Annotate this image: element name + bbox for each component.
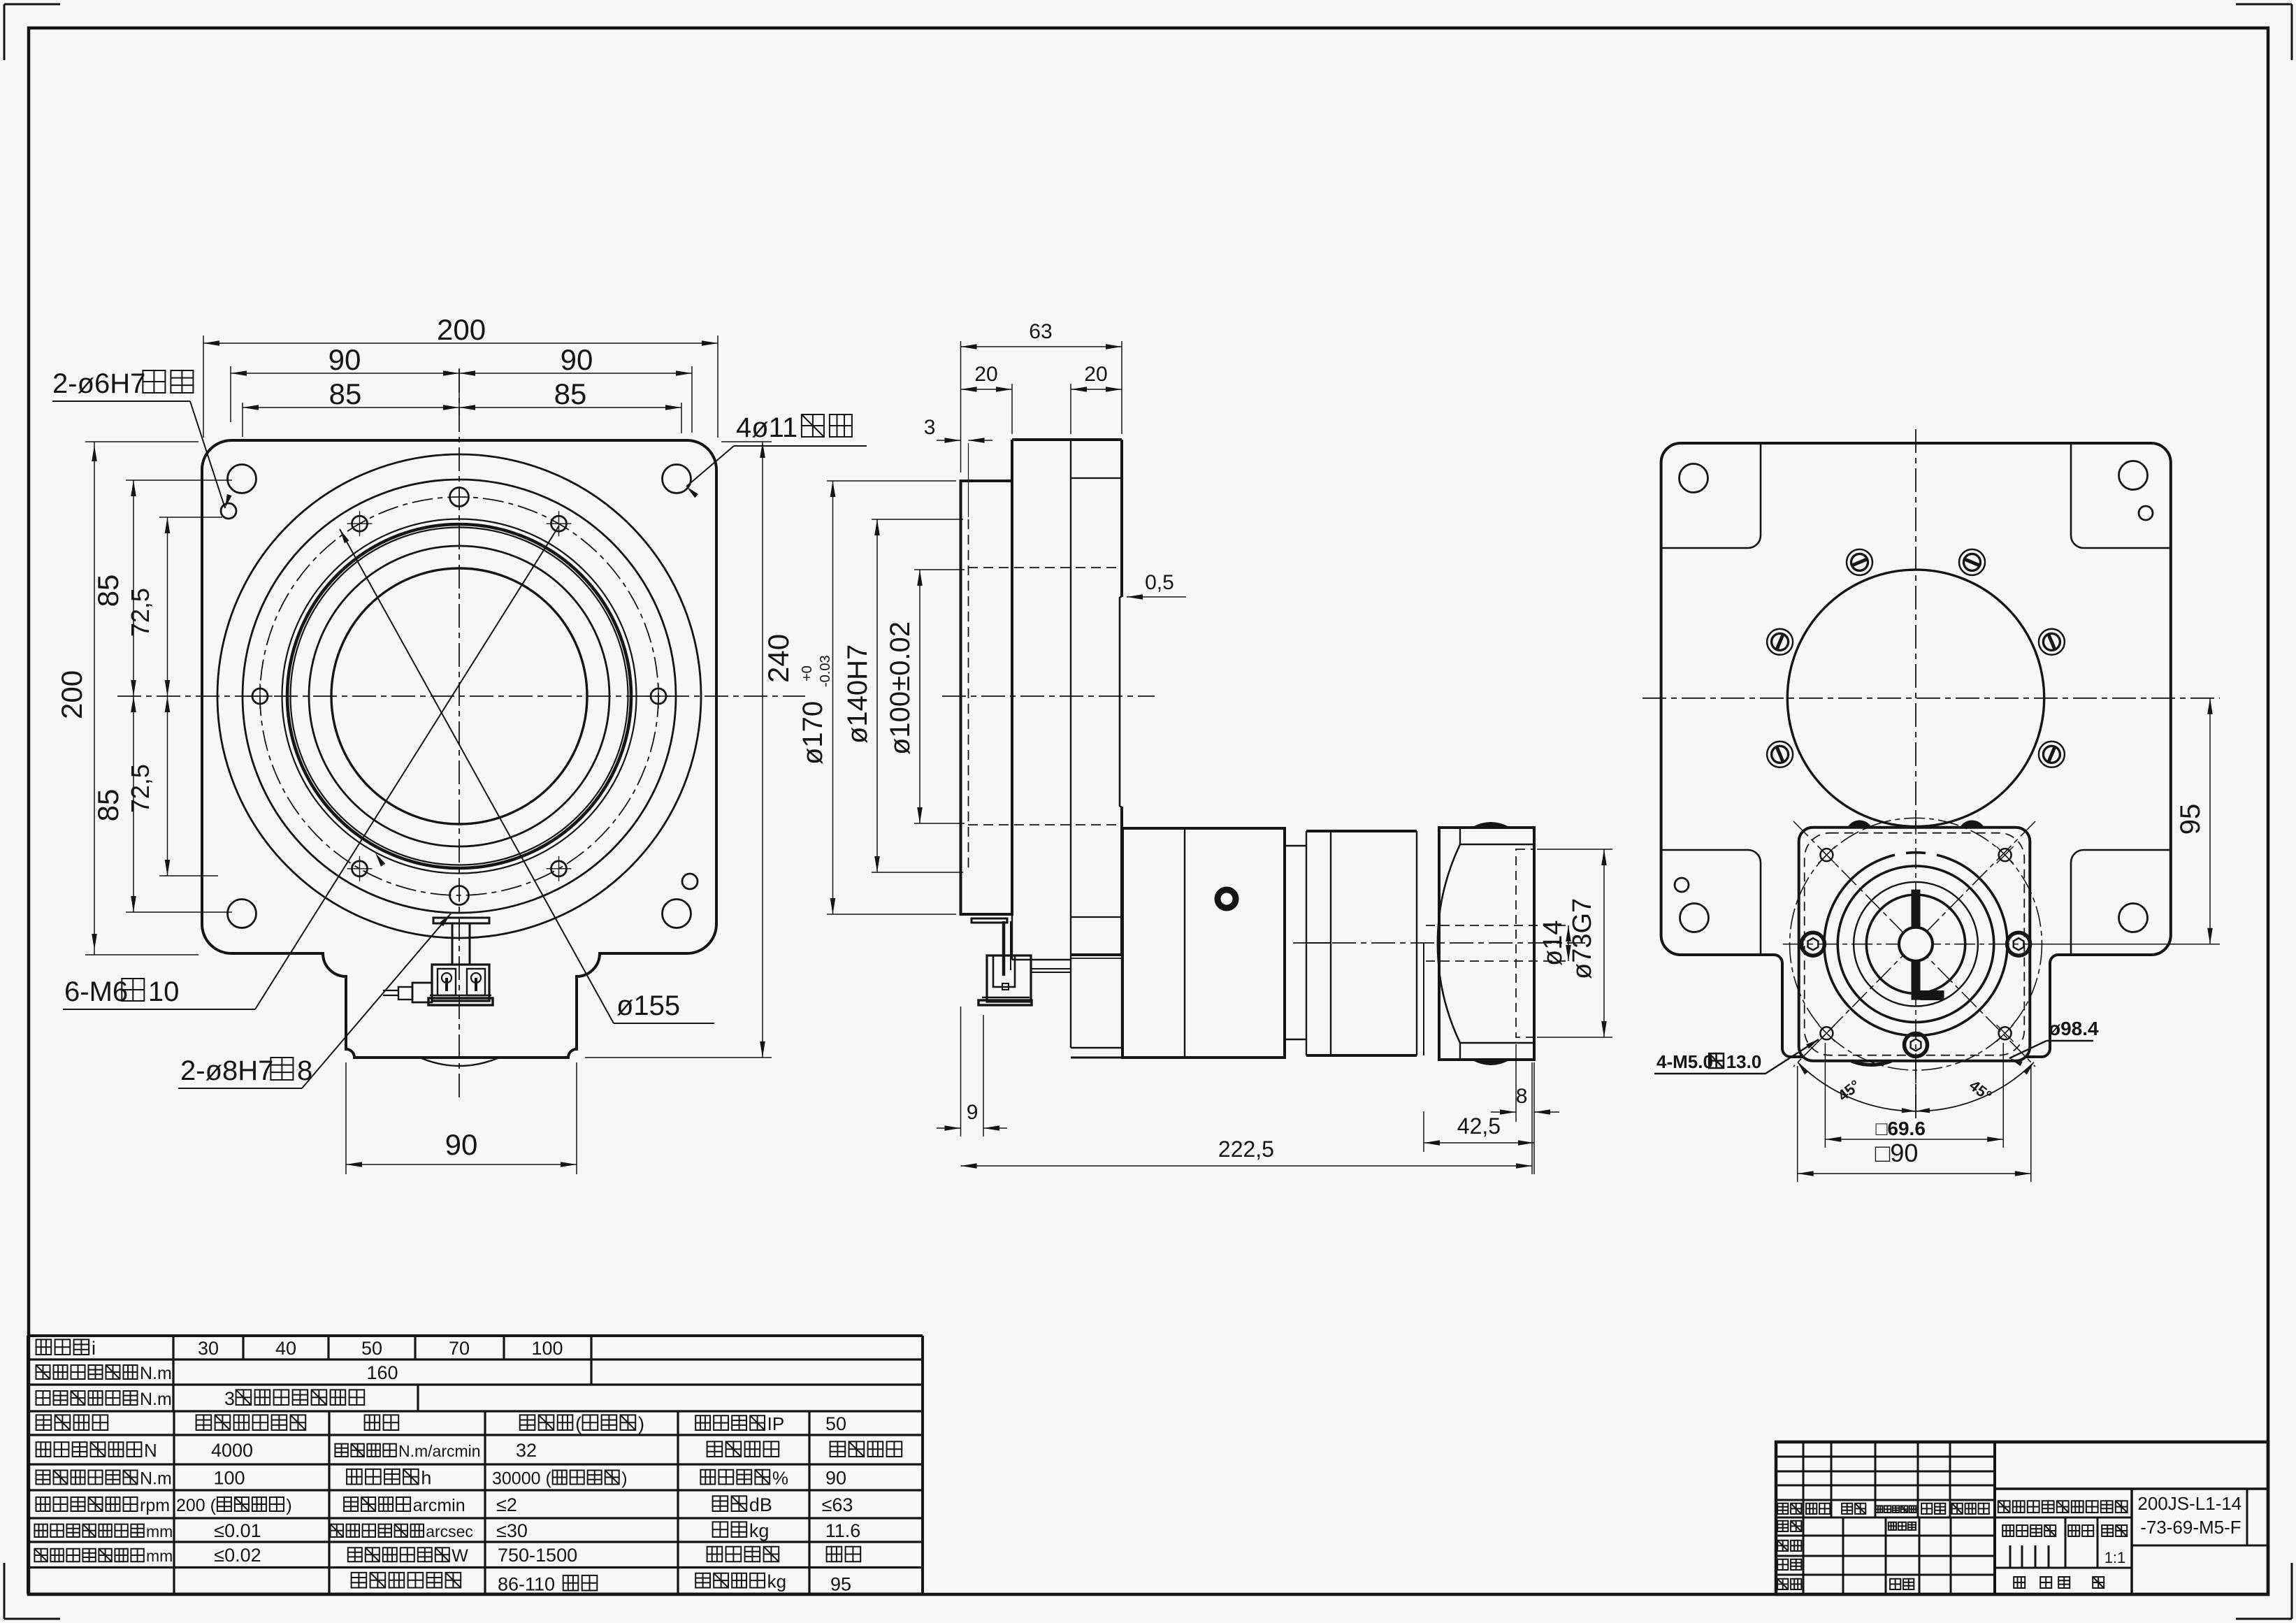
svg-text:ø100±0.02: ø100±0.02 [885, 621, 916, 755]
svg-text:42,5: 42,5 [1457, 1113, 1501, 1139]
svg-text:200: 200 [437, 313, 486, 346]
svg-text:N.m: N.m [140, 1364, 172, 1383]
svg-text:4ø11: 4ø11 [736, 412, 797, 443]
svg-text:160: 160 [367, 1362, 398, 1383]
svg-text:50: 50 [825, 1413, 846, 1434]
svg-text:+0: +0 [800, 665, 815, 681]
svg-text:63: 63 [1029, 320, 1052, 343]
svg-text:h: h [421, 1468, 431, 1489]
svg-text:arcmin: arcmin [413, 1496, 465, 1515]
svg-text:85: 85 [92, 575, 124, 607]
svg-text:70: 70 [449, 1338, 470, 1359]
svg-text:≤0.01: ≤0.01 [214, 1520, 261, 1541]
svg-text:(: ( [575, 1413, 582, 1434]
svg-text:9: 9 [967, 1101, 979, 1124]
svg-text:32: 32 [516, 1440, 537, 1461]
svg-text:ø170: ø170 [797, 701, 828, 765]
svg-text:4000: 4000 [211, 1440, 253, 1461]
svg-text:ø155: ø155 [616, 990, 680, 1021]
svg-text:ø140H7: ø140H7 [842, 644, 873, 744]
svg-text:240: 240 [762, 634, 795, 683]
svg-text:N: N [144, 1440, 157, 1461]
svg-text:11.6: 11.6 [825, 1520, 861, 1541]
svg-text:95: 95 [2175, 804, 2206, 835]
svg-text:30: 30 [198, 1338, 219, 1359]
svg-text:90: 90 [561, 343, 593, 376]
svg-text:dB: dB [749, 1494, 772, 1515]
svg-text:≤63: ≤63 [822, 1494, 853, 1515]
svg-text:200 (: 200 ( [176, 1496, 217, 1515]
svg-text:□90: □90 [1875, 1139, 1919, 1167]
svg-text:13.0: 13.0 [1726, 1051, 1762, 1072]
svg-text:kg: kg [749, 1520, 770, 1541]
svg-text:%: % [772, 1468, 788, 1489]
svg-text:72,5: 72,5 [126, 764, 154, 813]
svg-text:90: 90 [445, 1128, 478, 1161]
svg-text:200JS-L1-14: 200JS-L1-14 [2137, 1493, 2241, 1514]
svg-text:□69.6: □69.6 [1876, 1118, 1926, 1139]
svg-text:100: 100 [532, 1338, 563, 1359]
svg-text:90: 90 [825, 1468, 846, 1489]
svg-text:20: 20 [1084, 363, 1107, 386]
svg-text:40: 40 [275, 1338, 296, 1359]
svg-text:86-110: 86-110 [498, 1574, 555, 1595]
svg-text:≤30: ≤30 [496, 1520, 528, 1541]
svg-text:0,5: 0,5 [1145, 571, 1174, 594]
svg-text:ø73G7: ø73G7 [1568, 898, 1597, 979]
svg-text:30000 (: 30000 ( [492, 1469, 551, 1489]
svg-text:85: 85 [329, 377, 362, 410]
svg-text:ø98.4: ø98.4 [2049, 1018, 2099, 1039]
svg-text:ø14: ø14 [1538, 921, 1568, 966]
svg-text:2-ø6H7: 2-ø6H7 [52, 368, 145, 399]
svg-text:mm: mm [146, 1547, 173, 1565]
svg-text:95: 95 [830, 1574, 851, 1595]
svg-text:N.m: N.m [140, 1390, 172, 1409]
svg-text:3: 3 [224, 1388, 235, 1409]
svg-text:4-M5.0: 4-M5.0 [1656, 1051, 1713, 1072]
svg-text:10: 10 [148, 976, 180, 1007]
svg-text:N.m: N.m [140, 1469, 172, 1489]
svg-text:222,5: 222,5 [1218, 1137, 1274, 1162]
svg-text:1:1: 1:1 [2104, 1549, 2126, 1566]
svg-text:-0.03: -0.03 [818, 655, 833, 687]
svg-text:8: 8 [1516, 1085, 1528, 1108]
svg-text:mm: mm [146, 1522, 173, 1541]
svg-text:i: i [92, 1338, 96, 1359]
svg-text:85: 85 [92, 789, 124, 822]
svg-text:90: 90 [328, 343, 361, 376]
svg-text:2-ø8H7: 2-ø8H7 [180, 1055, 273, 1086]
svg-text:N.m/arcmin: N.m/arcmin [398, 1442, 481, 1460]
svg-text:): ) [286, 1496, 291, 1515]
svg-text:3: 3 [924, 416, 936, 439]
svg-text:IP: IP [767, 1413, 785, 1434]
svg-text:750-1500: 750-1500 [498, 1545, 577, 1566]
svg-text:20: 20 [974, 363, 997, 386]
svg-text:-73-69-M5-F: -73-69-M5-F [2140, 1517, 2241, 1538]
svg-text:≤2: ≤2 [496, 1494, 517, 1515]
svg-text:kg: kg [767, 1571, 786, 1592]
svg-text:): ) [621, 1469, 627, 1489]
svg-text:arcsec: arcsec [426, 1522, 473, 1541]
svg-text:8: 8 [297, 1055, 312, 1086]
svg-text:50: 50 [361, 1338, 382, 1359]
svg-text:200: 200 [55, 670, 88, 719]
svg-text:85: 85 [554, 377, 587, 410]
svg-text:≤0.02: ≤0.02 [214, 1545, 261, 1566]
svg-text:W: W [452, 1546, 468, 1566]
svg-text:100: 100 [214, 1468, 245, 1489]
svg-text:6-M6: 6-M6 [64, 976, 128, 1007]
svg-text:72,5: 72,5 [126, 588, 154, 637]
svg-text:): ) [638, 1413, 644, 1434]
svg-text:rpm: rpm [140, 1496, 170, 1515]
